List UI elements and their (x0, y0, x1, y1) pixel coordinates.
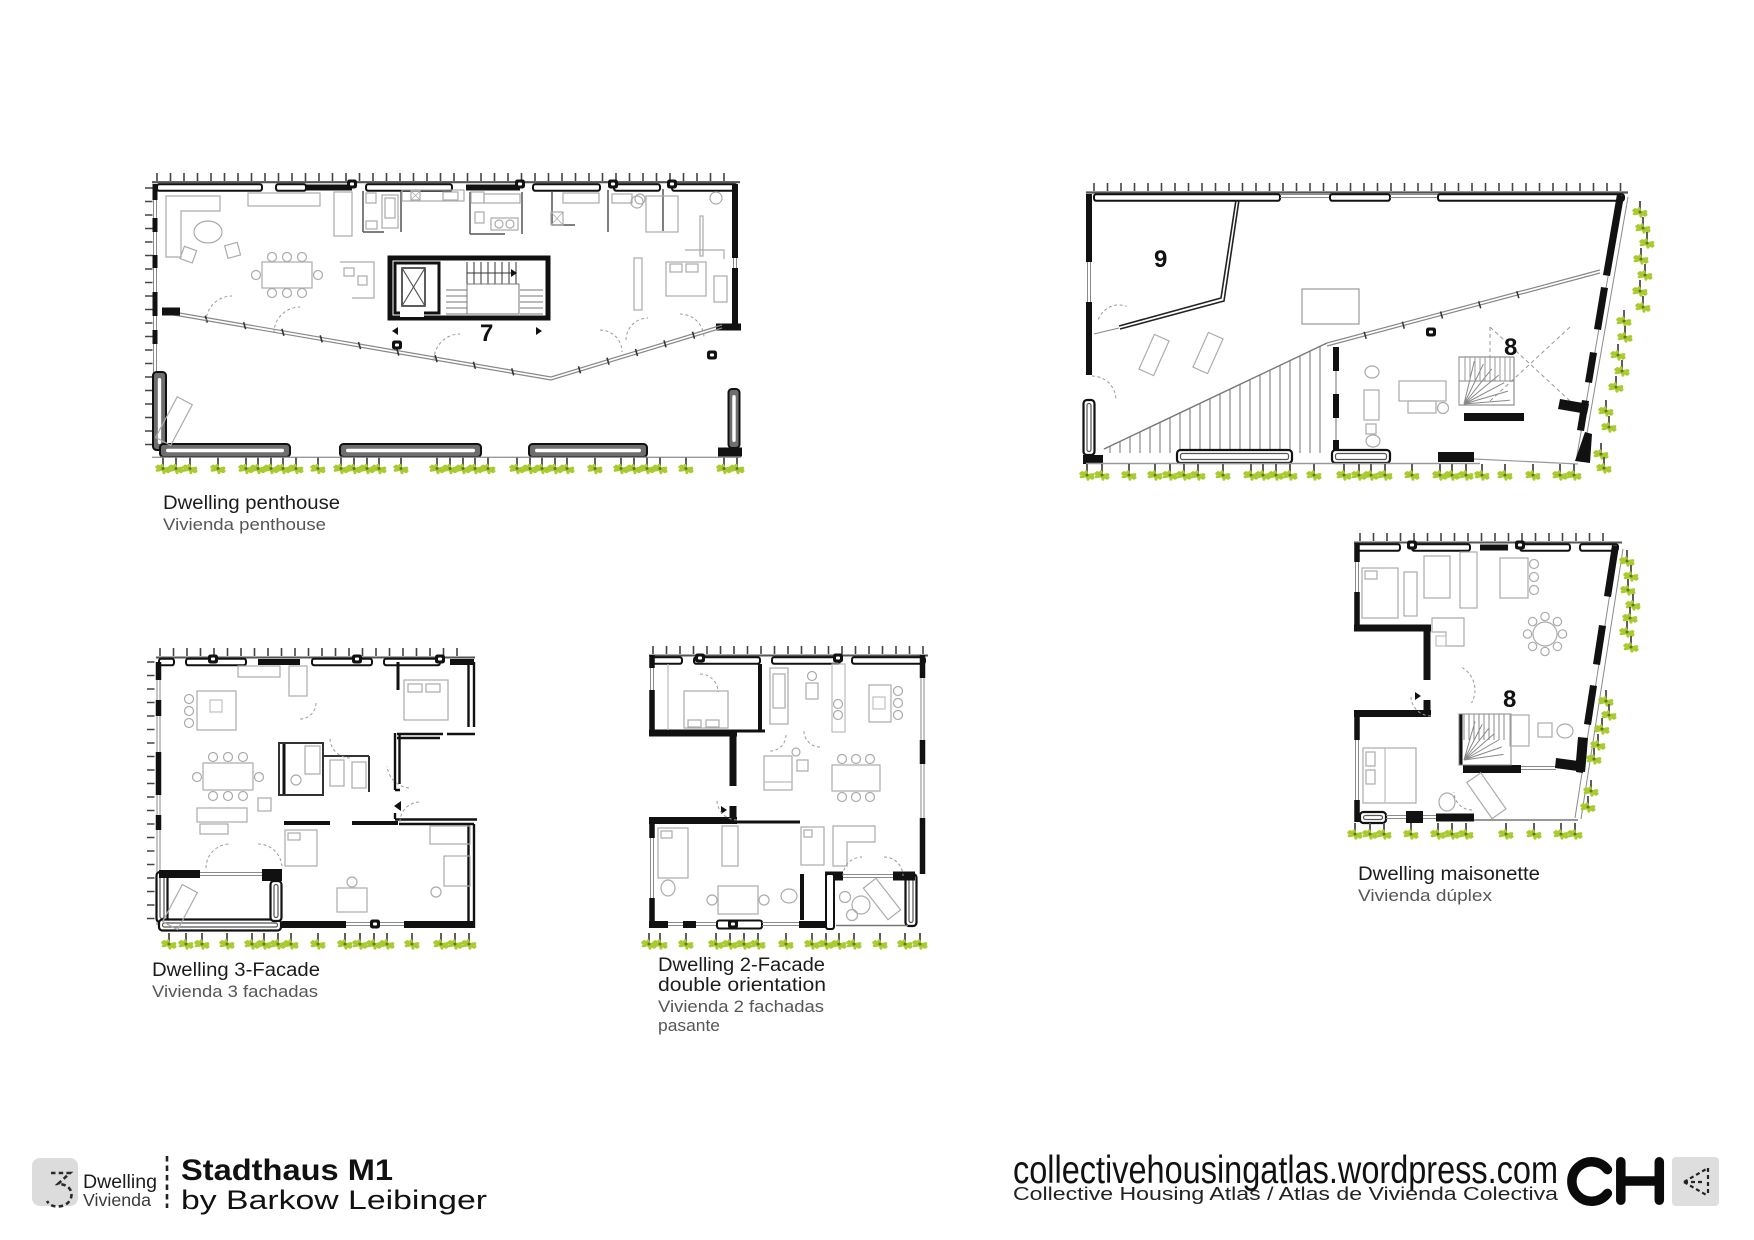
svg-text:Stadthaus M1: Stadthaus M1 (181, 1154, 393, 1187)
svg-text:Vivienda 2 fachadas: Vivienda 2 fachadas (658, 997, 824, 1016)
svg-text:Vivienda: Vivienda (83, 1190, 151, 1210)
svg-text:Dwelling 3-Facade: Dwelling 3-Facade (152, 960, 320, 981)
svg-text:pasante: pasante (658, 1016, 720, 1035)
svg-text:8: 8 (1503, 686, 1516, 713)
svg-text:7: 7 (480, 320, 493, 347)
svg-text:double orientation: double orientation (658, 975, 826, 996)
svg-text:Vivienda penthouse: Vivienda penthouse (163, 515, 326, 534)
svg-text:Vivienda dúplex: Vivienda dúplex (1358, 886, 1493, 905)
svg-text:Dwelling 2-Facade: Dwelling 2-Facade (658, 955, 825, 976)
svg-text:Dwelling maisonette: Dwelling maisonette (1358, 864, 1540, 885)
svg-text:9: 9 (1154, 246, 1167, 273)
svg-text:Collective Housing Atlas / Atl: Collective Housing Atlas / Atlas de Vivi… (1013, 1183, 1559, 1204)
svg-text:Vivienda 3 fachadas: Vivienda 3 fachadas (152, 982, 318, 1001)
svg-text:by Barkow Leibinger: by Barkow Leibinger (181, 1185, 487, 1215)
svg-text:Dwelling penthouse: Dwelling penthouse (163, 493, 340, 514)
